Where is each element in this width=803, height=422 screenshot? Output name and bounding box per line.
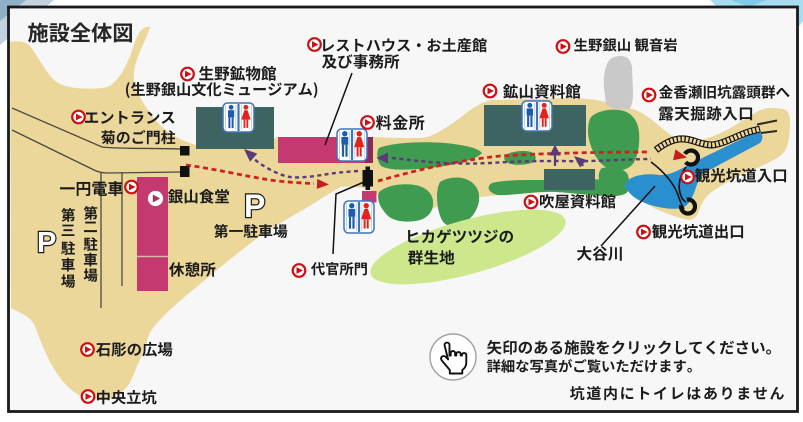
svg-text:P: P <box>37 227 56 259</box>
svg-text:P: P <box>244 188 265 224</box>
